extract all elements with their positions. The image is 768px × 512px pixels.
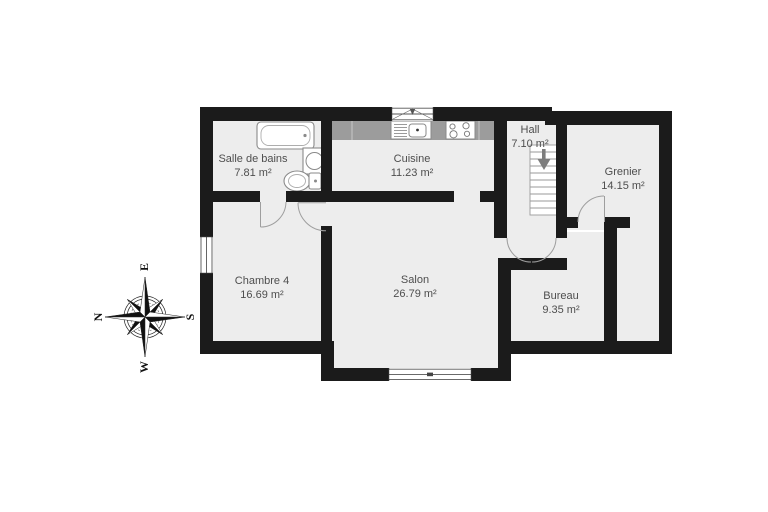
kitchen-counter — [332, 121, 494, 140]
wall-left-upper — [200, 107, 213, 236]
wall-bureau-top — [507, 258, 567, 270]
floor-chambre-4 — [207, 198, 327, 348]
room-area: 7.81 m² — [234, 167, 272, 179]
staircase — [530, 145, 557, 215]
compass-cardinal-points — [105, 277, 185, 357]
wall-bath-bottom-a — [207, 191, 260, 202]
bathtub-icon — [257, 122, 314, 149]
floor-plan-page: E N S W Salle de bains 7.81 m² Cuisine 1… — [0, 0, 768, 512]
wall-bath-cuisine — [321, 115, 332, 202]
wall-grenier-bureau — [604, 217, 617, 354]
compass-letter-north: N — [91, 312, 105, 321]
stove-icon — [446, 121, 475, 139]
compass-letter-west: W — [137, 361, 151, 373]
room-area: 14.15 m² — [601, 180, 645, 192]
room-name: Grenier — [605, 166, 642, 178]
window-center-tick — [427, 373, 433, 377]
wall-cuisine-salon — [332, 191, 454, 202]
wall-bath-bottom-b — [286, 191, 332, 202]
room-name: Bureau — [543, 290, 578, 302]
room-name: Salon — [401, 274, 429, 286]
room-area: 11.23 m² — [391, 167, 434, 179]
floor-salon — [327, 198, 503, 374]
wall-bottom-chambre — [200, 341, 334, 354]
room-area: 9.35 m² — [542, 304, 580, 316]
toilet-icon — [284, 171, 321, 191]
wall-right — [659, 111, 672, 354]
compass-letter-south: S — [183, 313, 197, 320]
compass-letter-east: E — [137, 263, 151, 271]
wall-salon-bureau — [498, 258, 511, 381]
kitchen-sink-icon — [391, 121, 431, 139]
room-area: 16.69 m² — [240, 289, 284, 301]
room-name: Cuisine — [394, 153, 431, 165]
window-kitchen-top — [391, 107, 434, 121]
wall-bottom-right — [498, 341, 672, 354]
wall-grenier-stub-west — [556, 217, 578, 228]
floor-grenier-arm — [610, 217, 666, 354]
floor-plan-canvas: E N S W Salle de bains 7.81 m² Cuisine 1… — [0, 0, 768, 512]
room-area: 26.79 m² — [393, 288, 437, 300]
window-salon-bottom — [388, 368, 472, 381]
room-area: 7.10 m² — [511, 138, 549, 150]
wall-hall-left — [494, 115, 507, 238]
room-name: Hall — [521, 124, 540, 136]
room-name: Salle de bains — [218, 153, 288, 165]
wall-chambre-salon — [321, 226, 332, 354]
window-left-wall — [200, 236, 213, 274]
compass-rose: E N S W — [91, 263, 197, 373]
room-name: Chambre 4 — [235, 275, 289, 287]
